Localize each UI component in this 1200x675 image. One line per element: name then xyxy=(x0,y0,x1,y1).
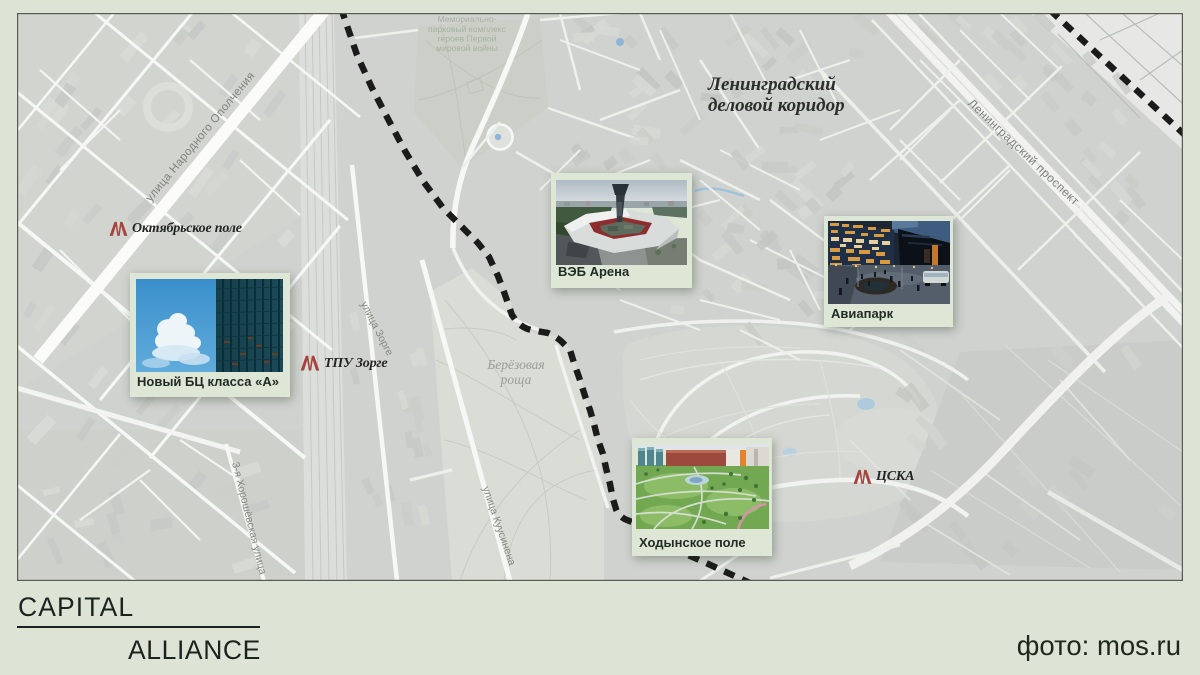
svg-text:Мемориально-: Мемориально- xyxy=(438,14,497,24)
svg-text:мировой войны: мировой войны xyxy=(436,43,498,53)
svg-text:парковый комплекс: парковый комплекс xyxy=(428,24,507,34)
svg-text:героев Первой: героев Первой xyxy=(438,34,497,44)
svg-text:Берёзовая: Берёзовая xyxy=(486,357,544,372)
svg-text:роща: роща xyxy=(500,372,532,387)
